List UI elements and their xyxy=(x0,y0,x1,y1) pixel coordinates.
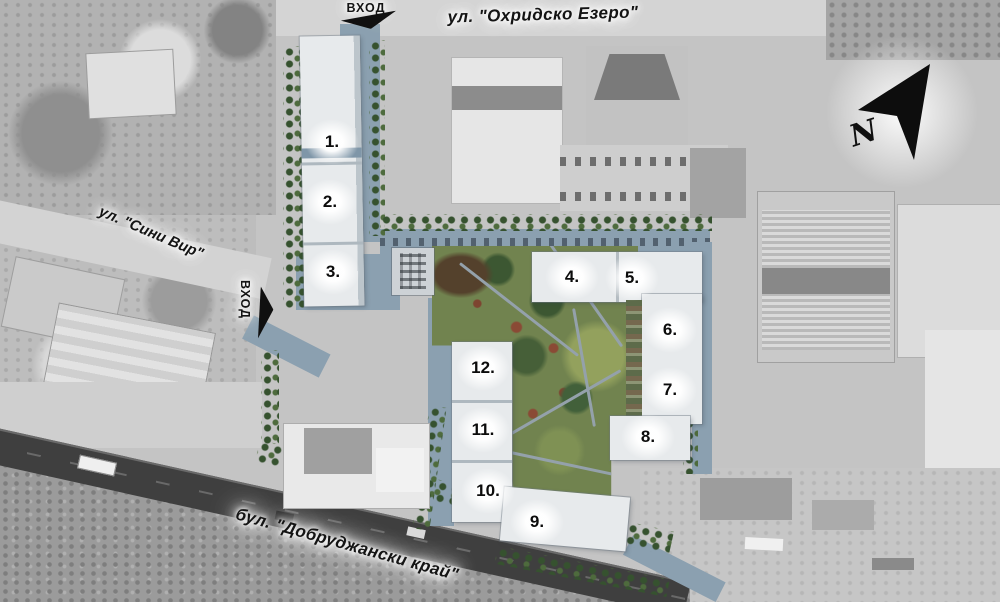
roof-patch xyxy=(376,448,424,492)
aerial-white-roof xyxy=(86,50,175,118)
aerial-roof-band xyxy=(452,86,562,110)
building-marker-6[interactable]: 6. xyxy=(643,307,697,353)
parking-structure xyxy=(392,248,434,295)
building-marker-2[interactable]: 2. xyxy=(303,179,357,225)
building-number: 3. xyxy=(326,262,340,282)
aerial-roof-dark xyxy=(594,54,680,100)
aerial-structure xyxy=(812,500,874,530)
building-marker-3[interactable]: 3. xyxy=(306,249,360,295)
roof-patch xyxy=(304,428,372,474)
building-number: 10. xyxy=(476,481,500,501)
truck xyxy=(745,537,784,551)
building-marker-12[interactable]: 12. xyxy=(456,345,510,391)
building-marker-7[interactable]: 7. xyxy=(643,367,697,413)
site-plan-map: 1. 2. 3. 4. 5. 6. 7. 8. 9. 10. 11. 12. В… xyxy=(0,0,1000,602)
building-marker-9[interactable]: 9. xyxy=(510,499,564,545)
bus xyxy=(77,455,117,477)
building-number: 7. xyxy=(663,380,677,400)
tree-row xyxy=(261,350,279,446)
aerial-structure xyxy=(872,558,914,570)
building-number: 2. xyxy=(323,192,337,212)
aerial-structure xyxy=(700,478,792,520)
building-marker-1[interactable]: 1. xyxy=(305,119,359,165)
building-marker-5[interactable]: 5. xyxy=(605,255,659,301)
building-number: 8. xyxy=(641,427,655,447)
building-marker-4[interactable]: 4. xyxy=(545,254,599,300)
building-marker-10[interactable]: 10. xyxy=(461,468,515,514)
park-path xyxy=(572,308,596,427)
tree-row xyxy=(380,214,712,231)
entrance-label-west: ВХОД xyxy=(238,280,252,338)
aerial-warehouse-center xyxy=(452,58,562,203)
ribbed-roof xyxy=(762,210,890,268)
roof-dark-band xyxy=(762,268,890,294)
building-number: 4. xyxy=(565,267,579,287)
building-number: 9. xyxy=(530,512,544,532)
building-number: 12. xyxy=(471,358,495,378)
building-number: 11. xyxy=(472,420,495,440)
building-number: 1. xyxy=(325,132,339,152)
aerial-building xyxy=(690,148,746,218)
aerial-peaked-roof-building xyxy=(586,46,688,152)
building-number: 5. xyxy=(625,268,639,288)
existing-building xyxy=(284,424,429,508)
building-marker-11[interactable]: 11. xyxy=(456,407,510,453)
building-number: 6. xyxy=(663,320,677,340)
ribbed-roof xyxy=(762,294,890,350)
aerial-warehouse-right xyxy=(758,192,894,362)
balcony-strip xyxy=(626,300,642,418)
park-path xyxy=(499,369,622,442)
tree-row xyxy=(369,40,385,236)
building-marker-8[interactable]: 8. xyxy=(621,414,675,460)
